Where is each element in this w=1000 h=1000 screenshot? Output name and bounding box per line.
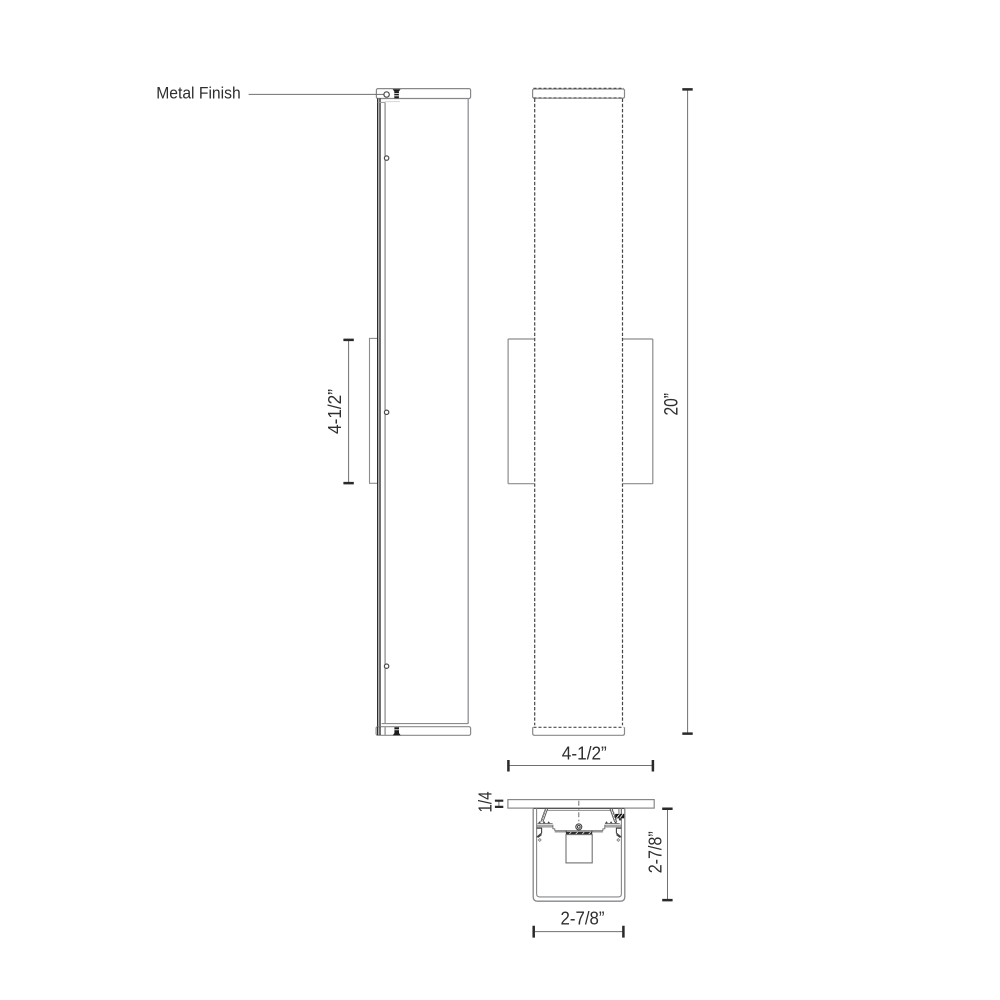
svg-text:1/4: 1/4 — [474, 792, 495, 813]
svg-text:4-1/2”: 4-1/2” — [562, 743, 607, 764]
svg-text:4-1/2”: 4-1/2” — [324, 389, 345, 434]
svg-text:2-7/8”: 2-7/8” — [561, 908, 605, 929]
svg-text:Metal Finish: Metal Finish — [156, 84, 241, 103]
svg-text:2-7/8”: 2-7/8” — [644, 831, 665, 873]
svg-text:20”: 20” — [661, 393, 682, 416]
